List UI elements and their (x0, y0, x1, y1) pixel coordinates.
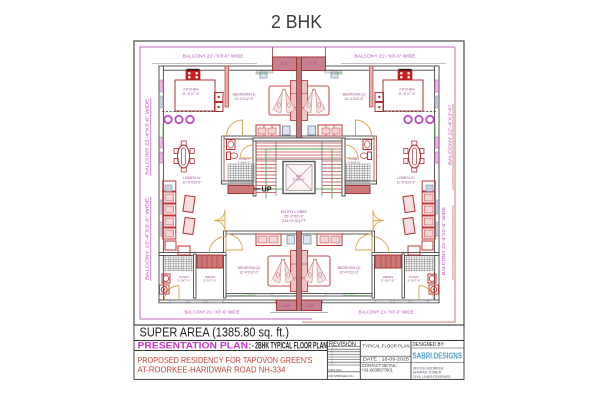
svg-text:C.P.: C.P. (284, 304, 291, 308)
svg-text:SABRI.DESIGNS: SABRI.DESIGNS (413, 352, 463, 361)
svg-text:+91-8638577901: +91-8638577901 (362, 367, 394, 372)
svg-text:LOBBY/LIV.: LOBBY/LIV. (397, 176, 415, 180)
svg-text:25'-9"X6'-3": 25'-9"X6'-3" (284, 215, 304, 219)
svg-text:KITCHEN: KITCHEN (184, 88, 199, 92)
svg-text:12'-4"X12'-0": 12'-4"X12'-0" (339, 271, 359, 275)
svg-text:SLIDING: SLIDING (255, 72, 268, 76)
svg-text:CIVIL LINES ROORKEE: CIVIL LINES ROORKEE (413, 375, 452, 379)
svg-text:12'-4"X12'-0": 12'-4"X12'-0" (239, 271, 259, 275)
svg-text:SUPER AREA (1385.80 sq. ft.): SUPER AREA (1385.80 sq. ft.) (140, 325, 290, 340)
svg-text:ENTRY LOBBY: ENTRY LOBBY (281, 210, 308, 214)
svg-text:BALCONY 22'-4"X3'-6": BALCONY 22'-4"X3'-6" (448, 104, 453, 165)
svg-text:BALCONY 21'-"X3'-6" WIDE: BALCONY 21'-"X3'-6" WIDE (185, 310, 240, 315)
svg-text:5'-0X7'-6": 5'-0X7'-6" (382, 279, 395, 283)
svg-text:8'-0X6'-6": 8'-0X6'-6" (293, 178, 305, 182)
svg-text:PROPOSED RESIDENCY FOR TAPOVON: PROPOSED RESIDENCY FOR TAPOVON GREEN'S (137, 355, 312, 365)
svg-text:KITCHEN: KITCHEN (400, 88, 415, 92)
svg-text:314.00 SQ.FT: 314.00 SQ.FT (282, 219, 307, 223)
svg-text:BALCONY 21'-"X3'-6" WIDE: BALCONY 21'-"X3'-6" WIDE (183, 54, 244, 59)
svg-text:SLIDING: SLIDING (331, 72, 344, 76)
svg-text:LOBBY/LIV.: LOBBY/LIV. (183, 176, 201, 180)
svg-text:C.P.: C.P. (308, 304, 315, 308)
svg-text:REVISION: REVISION (329, 341, 356, 348)
svg-text:BALCONY 22'-4"X3'-6" WIDE: BALCONY 22'-4"X3'-6" WIDE (145, 198, 150, 280)
svg-text:- 2BHK TYPICAL FLOOR PLAN: - 2BHK TYPICAL FLOOR PLAN (252, 341, 327, 351)
svg-text:11'-9"X23'-6": 11'-9"X23'-6" (182, 181, 202, 185)
svg-text:12'-4"X12'-6": 12'-4"X12'-6" (344, 97, 364, 101)
svg-text:2 BHK: 2 BHK (271, 12, 322, 32)
svg-text:SLIDING: SLIDING (344, 294, 357, 298)
svg-text:7'-6X4'-0": 7'-6X4'-0" (348, 161, 361, 165)
svg-text:DATE : 18-09-2025: DATE : 18-09-2025 (363, 356, 410, 361)
svg-text:5'-0X7'-6": 5'-0X7'-6" (204, 279, 217, 283)
svg-text:BALCONY 22'-4"X3'-6" WIDE: BALCONY 22'-4"X3'-6" WIDE (145, 99, 150, 175)
svg-text:TYPICAL FLOOR PLAN: TYPICAL FLOOR PLAN (363, 344, 410, 349)
svg-text:BEDROOM-(1): BEDROOM-(1) (343, 93, 366, 97)
svg-text:C.P.: C.P. (281, 62, 288, 66)
svg-text:DR.SHRVEEN AU: DR.SHRVEEN AU (329, 374, 354, 378)
svg-text:11'-6"X7'-6": 11'-6"X7'-6" (398, 92, 416, 96)
svg-text:DRG NO:: DRG NO: (329, 368, 342, 372)
svg-text:PRESENTATION PLAN:: PRESENTATION PLAN: (138, 341, 252, 351)
svg-text:SLIDING: SLIDING (242, 294, 255, 298)
svg-text:BALCONY 21'-"X3'-6" WIDE: BALCONY 21'-"X3'-6" WIDE (359, 310, 414, 315)
svg-text:UP: UP (262, 185, 272, 194)
svg-text:AT-ROORKEE-HARIDWAR ROAD NH-33: AT-ROORKEE-HARIDWAR ROAD NH-334 (137, 364, 285, 374)
svg-text:BALCONY 21'-"X3'-6" WIDE: BALCONY 21'-"X3'-6" WIDE (355, 54, 416, 59)
svg-text:BEDROOM-(1): BEDROOM-(1) (233, 93, 256, 97)
svg-text:11'-9"X23'-6": 11'-9"X23'-6" (396, 181, 416, 185)
svg-text:BEDROOM-(2): BEDROOM-(2) (338, 266, 361, 270)
svg-text:11'-6"X7'-6": 11'-6"X7'-6" (182, 92, 200, 96)
svg-text:5'-0X7'-6": 5'-0X7'-6" (178, 279, 191, 283)
svg-text:5'-0X7'-6": 5'-0X7'-6" (408, 279, 421, 283)
svg-text:12'-4"X12'-6": 12'-4"X12'-6" (234, 97, 254, 101)
svg-text:DESIGNED BY:: DESIGNED BY: (413, 342, 445, 348)
svg-text:BALCONY 22'-4"X3'-6" WIDE: BALCONY 22'-4"X3'-6" WIDE (441, 207, 446, 275)
svg-text:7'-6X4'-0": 7'-6X4'-0" (238, 161, 251, 165)
svg-text:BEDROOM-(2): BEDROOM-(2) (238, 266, 261, 270)
svg-text:C.P.: C.P. (310, 62, 317, 66)
